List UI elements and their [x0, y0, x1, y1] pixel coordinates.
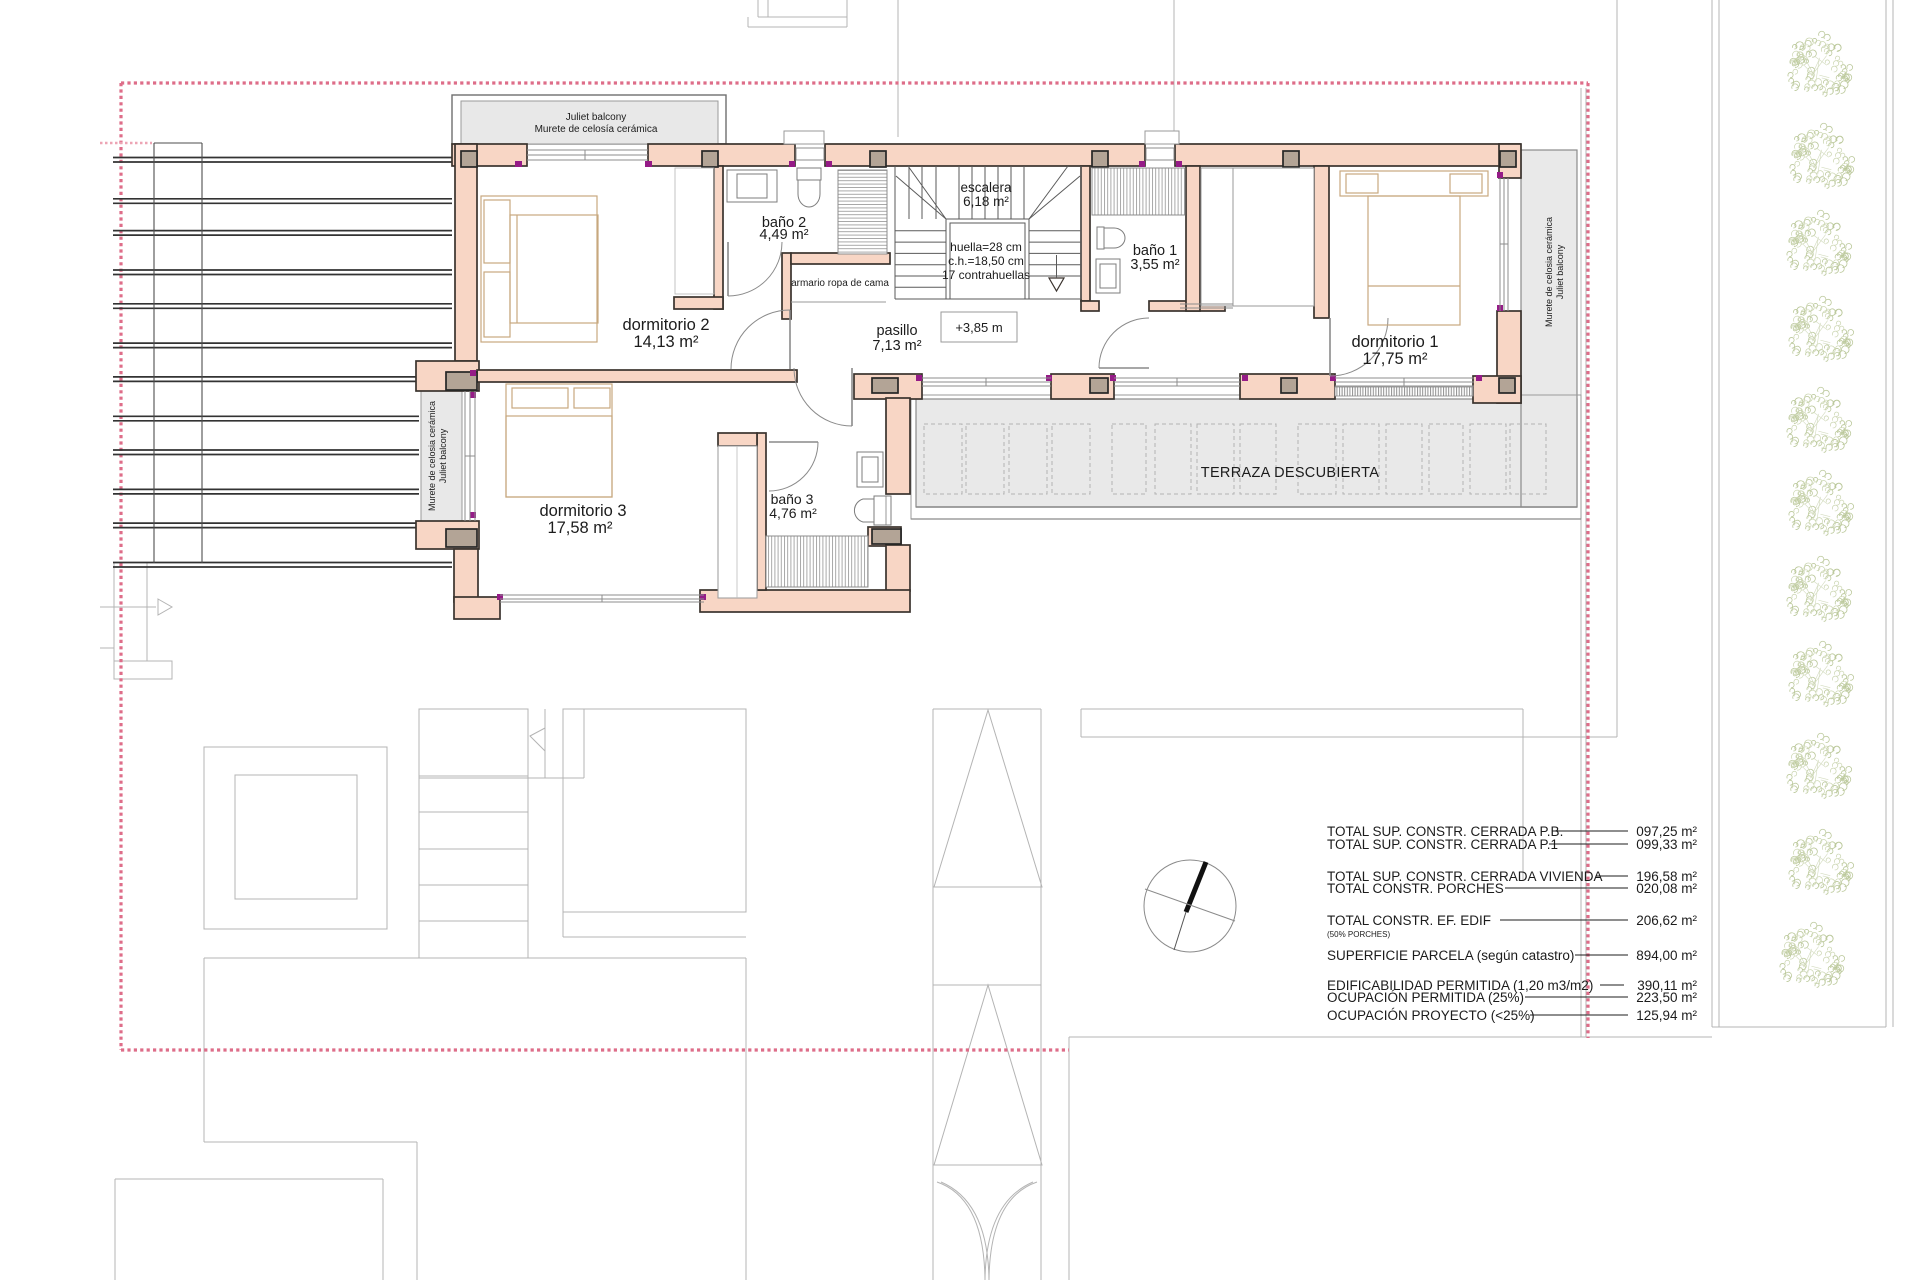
svg-text:Juliet balcony: Juliet balcony: [566, 112, 627, 123]
svg-text:dormitorio 2: dormitorio 2: [622, 316, 709, 334]
svg-text:Murete de celosia cerámica: Murete de celosia cerámica: [1544, 217, 1554, 327]
svg-text:TERRAZA DESCUBIERTA: TERRAZA DESCUBIERTA: [1201, 465, 1379, 481]
svg-text:4,49 m²: 4,49 m²: [759, 227, 808, 243]
svg-text:armario ropa de cama: armario ropa de cama: [791, 278, 889, 289]
svg-text:escalera: escalera: [960, 180, 1012, 195]
svg-text:099,33 m²: 099,33 m²: [1636, 837, 1697, 852]
svg-text:huella=28 cm: huella=28 cm: [950, 240, 1022, 254]
svg-text:894,00 m²: 894,00 m²: [1636, 948, 1697, 963]
svg-text:(50% PORCHES): (50% PORCHES): [1327, 930, 1390, 939]
svg-text:14,13 m²: 14,13 m²: [633, 333, 699, 351]
svg-text:3,55 m²: 3,55 m²: [1130, 257, 1179, 273]
svg-text:17 contrahuellas: 17 contrahuellas: [942, 268, 1030, 282]
svg-text:TOTAL SUP. CONSTR. CERRADA P.1: TOTAL SUP. CONSTR. CERRADA P.1: [1327, 837, 1558, 852]
svg-text:c.h.=18,50 cm: c.h.=18,50 cm: [948, 254, 1024, 268]
svg-text:020,08 m²: 020,08 m²: [1636, 881, 1697, 896]
svg-text:SUPERFICIE PARCELA (según cata: SUPERFICIE PARCELA (según catastro): [1327, 948, 1574, 963]
svg-text:OCUPACIÓN PERMITIDA (25%): OCUPACIÓN PERMITIDA (25%): [1327, 990, 1524, 1005]
svg-text:OCUPACIÓN PROYECTO (<25%): OCUPACIÓN PROYECTO (<25%): [1327, 1008, 1535, 1023]
svg-text:206,62 m²: 206,62 m²: [1636, 913, 1697, 928]
svg-text:Juliet balcony: Juliet balcony: [1555, 244, 1565, 299]
svg-text:125,94 m²: 125,94 m²: [1636, 1008, 1697, 1023]
svg-text:17,58 m²: 17,58 m²: [547, 519, 613, 537]
svg-text:Murete de celosia cerámica: Murete de celosia cerámica: [427, 401, 437, 511]
svg-text:TOTAL CONSTR. EF. EDIF: TOTAL CONSTR. EF. EDIF: [1327, 913, 1491, 928]
svg-text:4,76 m²: 4,76 m²: [769, 505, 817, 521]
svg-text:223,50 m²: 223,50 m²: [1636, 990, 1697, 1005]
svg-text:Murete de celosía cerámica: Murete de celosía cerámica: [535, 124, 658, 135]
svg-text:TOTAL CONSTR. PORCHES: TOTAL CONSTR. PORCHES: [1327, 881, 1504, 896]
svg-text:dormitorio 3: dormitorio 3: [539, 502, 626, 520]
svg-text:7,13 m²: 7,13 m²: [872, 338, 921, 354]
svg-text:pasillo: pasillo: [876, 323, 917, 339]
svg-text:Juliet balcony: Juliet balcony: [438, 428, 448, 483]
svg-text:dormitorio 1: dormitorio 1: [1351, 333, 1438, 351]
svg-text:6,18 m²: 6,18 m²: [963, 194, 1009, 209]
svg-text:+3,85 m: +3,85 m: [955, 320, 1002, 335]
svg-text:17,75 m²: 17,75 m²: [1362, 350, 1428, 368]
